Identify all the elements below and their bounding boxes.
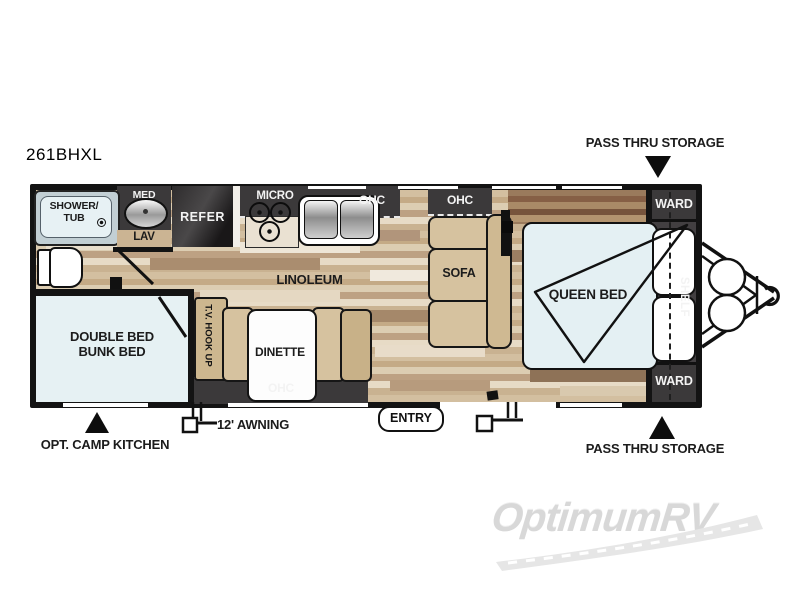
dinette-bench-back (340, 309, 372, 382)
pass-thru-storage-bottom-label: PASS THRU STORAGE (570, 441, 740, 456)
floor-plank (530, 370, 650, 382)
ward-top-label: WARD (652, 197, 696, 211)
bed-platform-floor (508, 190, 648, 224)
sofa-label: SOFA (428, 266, 490, 280)
floor-plank (560, 386, 650, 396)
lav-label: LAV (117, 231, 171, 243)
lav-wall (113, 247, 173, 252)
arrow-down-icon (645, 156, 671, 178)
window (560, 403, 622, 407)
window (562, 186, 622, 190)
burner-icon (259, 221, 280, 242)
window (228, 403, 368, 407)
ward-bottom-label: WARD (652, 374, 696, 388)
ohc-sofa-label: OHC (428, 193, 492, 207)
dinette-label: DINETTE (247, 345, 313, 359)
floorplan-canvas: 261BHXL PASS THRU STORAGE PASS THRU STOR… (0, 0, 800, 600)
window (492, 186, 556, 190)
pass-thru-storage-top-label: PASS THRU STORAGE (570, 135, 740, 150)
entry-door-opening (440, 402, 556, 408)
camp-kitchen-arrow-icon (85, 412, 109, 433)
med-label: MED (117, 189, 171, 201)
burner-icon (270, 202, 291, 223)
micro-label: MICRO (242, 190, 308, 202)
floor-plank (370, 310, 428, 322)
hitch-coupler-icon (765, 288, 778, 305)
entry-badge: ENTRY (378, 406, 444, 432)
refer-label: REFER (172, 210, 233, 224)
model-title: 261BHXL (26, 145, 102, 165)
partition-wall (501, 210, 510, 256)
floor-plank (370, 270, 430, 281)
tv-mount-marker (502, 221, 513, 233)
hitch-frame (702, 243, 774, 347)
queen-bed-label: QUEEN BED (530, 287, 646, 302)
watermark-logo: OptimumRV (490, 496, 717, 541)
camp-kitchen-opening (63, 403, 148, 407)
ohc-kitchen-label: OHC (348, 193, 396, 207)
shelf-label: SHELF (678, 267, 690, 327)
floor-plank (390, 380, 490, 391)
sofa-cushion (428, 216, 494, 250)
linoleum-label: LINOLEUM (262, 272, 357, 287)
ohc-dinette-label: OHC (194, 381, 368, 395)
window (398, 186, 458, 190)
arrow-up-icon (649, 416, 675, 439)
propane-tank-icon (709, 295, 745, 331)
counter-end-panel (233, 186, 240, 247)
floor-plank (150, 258, 320, 270)
lav-sink (124, 198, 168, 229)
awning-label: 12' AWNING (217, 417, 289, 432)
window (308, 186, 366, 190)
bath-bunk-wall (30, 289, 194, 296)
tv-hookup-label: T.V. HOOK UP (203, 298, 214, 374)
camp-kitchen-label: OPT. CAMP KITCHEN (30, 437, 180, 452)
propane-tank-icon (709, 259, 745, 295)
burner-icon (249, 202, 270, 223)
shower-head-icon (97, 218, 106, 227)
sink-basin (304, 200, 338, 239)
shelf-divider-line (669, 192, 671, 400)
sofa-cushion (428, 300, 494, 348)
toilet (49, 247, 83, 288)
bunk-label: DOUBLE BED BUNK BED (36, 330, 188, 360)
